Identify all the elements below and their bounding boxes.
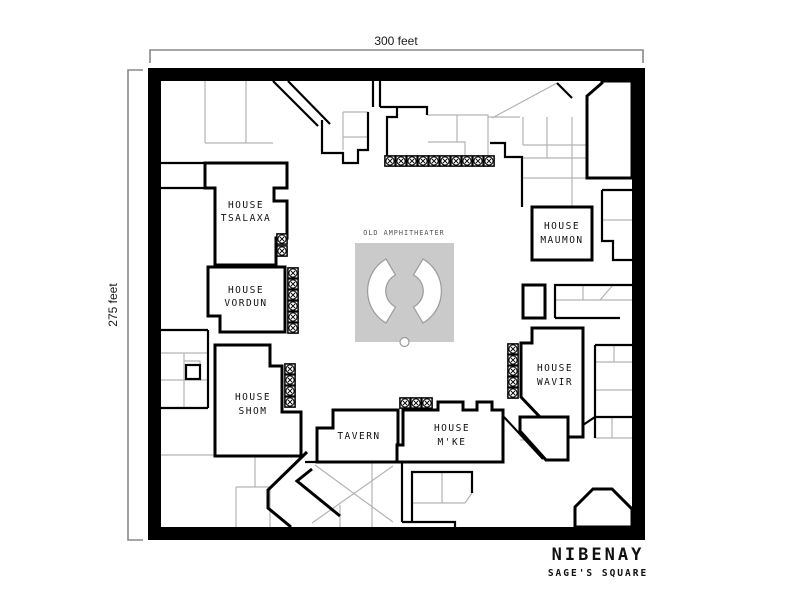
house-maumon-label-2: MAUMON bbox=[540, 235, 583, 246]
stall-col-wavir bbox=[508, 344, 518, 398]
map-page: 300 feet 275 feet bbox=[0, 0, 792, 612]
top-scale-label: 300 feet bbox=[374, 34, 418, 48]
house-wavir-label-1: HOUSE bbox=[537, 363, 573, 374]
house-vordun-label-2: VORDUN bbox=[224, 298, 267, 309]
house-shom-label-1: HOUSE bbox=[235, 392, 271, 403]
house-maumon-label-1: HOUSE bbox=[544, 221, 580, 232]
site-map-svg: 300 feet 275 feet bbox=[0, 0, 792, 612]
small-black-room bbox=[186, 365, 200, 379]
house-shom-label-2: SHOM bbox=[239, 406, 268, 417]
small-court-building-outline bbox=[523, 285, 545, 318]
house-wavir-label-2: WAVIR bbox=[537, 377, 573, 388]
amphitheater-label: OLD AMPHITHEATER bbox=[363, 229, 444, 237]
stall-row-north bbox=[385, 156, 494, 166]
house-tsalaxa-label-1: HOUSE bbox=[228, 200, 264, 211]
stall-row-mke bbox=[400, 398, 432, 408]
tavern-label: TAVERN bbox=[337, 431, 380, 442]
left-scale-label: 275 feet bbox=[106, 283, 120, 327]
left-scale-bracket bbox=[128, 70, 143, 540]
amphitheater-well bbox=[400, 338, 409, 347]
house-mke-label-2: M'KE bbox=[438, 437, 467, 448]
stall-col-vordun bbox=[288, 268, 298, 333]
ne-corner-building-outline bbox=[587, 81, 632, 178]
house-tsalaxa-label-2: TSALAXA bbox=[221, 213, 272, 224]
stall-col-shom bbox=[285, 364, 295, 407]
amphitheater bbox=[355, 243, 454, 347]
map-subtitle: SAGE'S SQUARE bbox=[548, 568, 648, 579]
top-scale-bracket bbox=[150, 50, 643, 63]
house-maumon-outline bbox=[532, 207, 592, 260]
map-title: NIBENAY bbox=[552, 545, 645, 565]
house-mke-label-1: HOUSE bbox=[434, 423, 470, 434]
house-vordun-label-1: HOUSE bbox=[228, 285, 264, 296]
